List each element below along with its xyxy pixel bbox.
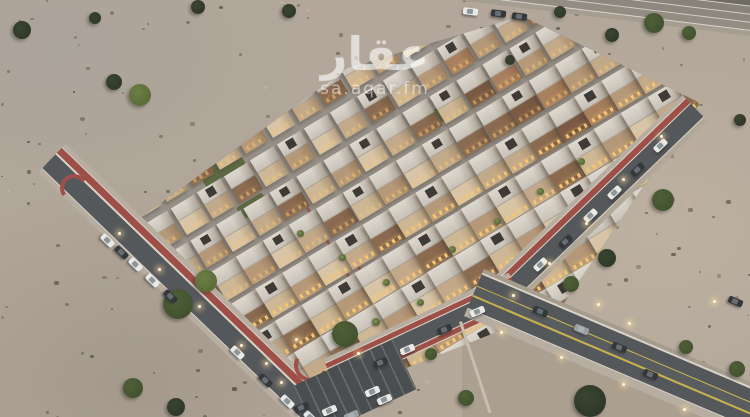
- car-windshield: [347, 412, 354, 417]
- villa-windows: [712, 123, 737, 140]
- palm-tree: [297, 230, 304, 237]
- tree: [129, 84, 151, 106]
- villa-shade: [151, 163, 189, 202]
- street-light: [512, 294, 515, 297]
- villa-roofbox: [637, 232, 652, 246]
- villa-roof: [391, 19, 421, 45]
- car-windshield: [615, 344, 622, 351]
- villa: [654, 33, 698, 78]
- car-windshield: [495, 11, 502, 17]
- street-light: [585, 222, 588, 225]
- villa-roof: [151, 163, 181, 189]
- villa-roof: [125, 179, 155, 205]
- tree: [598, 249, 616, 267]
- street-light: [198, 305, 201, 308]
- tree: [554, 6, 566, 18]
- street-light: [660, 135, 663, 138]
- villa: [679, 190, 729, 242]
- car-windshield: [473, 308, 480, 315]
- tree: [13, 21, 31, 39]
- villa-roofbox: [132, 186, 143, 197]
- villa-windows: [433, 380, 459, 398]
- villa-roof: [417, 3, 447, 29]
- villa-windows: [699, 220, 725, 238]
- villa-roof: [679, 190, 719, 224]
- street-light: [548, 262, 551, 265]
- villa-windows: [705, 172, 731, 190]
- tree: [679, 340, 693, 354]
- car-windshield: [103, 236, 111, 244]
- villa: [652, 206, 702, 258]
- street-light: [357, 352, 360, 355]
- villa-roof: [652, 206, 692, 240]
- tree: [734, 114, 746, 126]
- palm-tree: [449, 246, 456, 253]
- villa-roofbox: [292, 90, 303, 101]
- street-light: [683, 408, 686, 411]
- street-light: [118, 232, 121, 235]
- tree: [729, 361, 745, 377]
- villa-roof: [660, 159, 699, 192]
- palm-tree: [383, 279, 390, 286]
- villa-roof: [204, 131, 234, 157]
- street-light: [713, 300, 716, 303]
- tree: [282, 4, 296, 18]
- villa-windows: [626, 220, 652, 238]
- street-light: [240, 344, 243, 347]
- car: [491, 9, 507, 18]
- villa-roofbox: [372, 42, 383, 53]
- villa-windows: [432, 25, 452, 39]
- street-light: [597, 303, 600, 306]
- tree: [123, 378, 143, 398]
- villa: [231, 115, 269, 154]
- car-windshield: [380, 396, 387, 403]
- car-windshield: [261, 376, 269, 384]
- tree: [682, 26, 696, 40]
- street-light: [622, 383, 625, 386]
- villa-roofbox: [452, 0, 463, 5]
- car-windshield: [368, 388, 375, 395]
- street-light: [560, 356, 563, 359]
- villa-windows: [619, 268, 645, 286]
- villa-shade: [654, 33, 698, 78]
- villa-roofbox: [664, 41, 677, 54]
- tree: [89, 12, 101, 24]
- villa-windows: [646, 252, 672, 270]
- car-windshield: [577, 326, 584, 333]
- villa-roof: [686, 143, 725, 176]
- car-windshield: [440, 326, 447, 333]
- villa: [686, 143, 735, 193]
- tree: [332, 321, 358, 347]
- car-windshield: [646, 371, 653, 378]
- palm-tree: [417, 299, 424, 306]
- tree: [167, 398, 185, 416]
- villa-windows: [593, 284, 619, 302]
- car-windshield: [403, 346, 410, 353]
- villa: [391, 19, 429, 58]
- villa-windows: [672, 59, 695, 75]
- villa-windows: [532, 9, 553, 24]
- villa-shade: [626, 222, 676, 274]
- car-windshield: [516, 14, 523, 20]
- villa-roof: [674, 64, 710, 95]
- car-windshield: [233, 348, 241, 356]
- tree: [425, 348, 437, 360]
- villa-windows: [578, 26, 600, 41]
- villa-windows: [406, 396, 432, 414]
- palm-tree: [339, 254, 346, 261]
- tree: [644, 13, 664, 33]
- car: [463, 7, 479, 16]
- car-windshield: [131, 260, 139, 268]
- villa: [626, 222, 676, 274]
- street-light: [628, 322, 631, 325]
- street-light: [500, 331, 503, 334]
- villa-windows: [692, 91, 716, 108]
- tree: [191, 0, 205, 14]
- tree: [458, 390, 474, 406]
- street-light: [158, 268, 161, 271]
- villa-shade: [686, 143, 735, 193]
- car-windshield: [467, 9, 474, 15]
- aerial-photo: عقار sa.aqar.fm: [0, 0, 750, 417]
- villa: [151, 163, 189, 202]
- car-windshield: [148, 276, 156, 284]
- villa-windows: [679, 188, 705, 206]
- tree: [505, 55, 515, 65]
- villa-windows: [685, 139, 710, 156]
- palm-tree: [537, 188, 544, 195]
- car-windshield: [376, 359, 383, 366]
- highway-top: [408, 0, 750, 38]
- car-windshield: [325, 407, 332, 414]
- tree: [652, 189, 674, 211]
- palm-tree: [372, 318, 380, 326]
- villa-shade: [652, 206, 702, 258]
- tree: [605, 28, 619, 42]
- street-light: [265, 362, 268, 365]
- car-windshield: [536, 308, 543, 315]
- tree: [563, 276, 579, 292]
- villa-windows: [625, 42, 647, 58]
- tree: [195, 270, 217, 292]
- car-windshield: [117, 248, 125, 256]
- villa-shade: [679, 190, 729, 242]
- villa-roof: [626, 222, 666, 256]
- villa-roofbox: [212, 138, 223, 149]
- tree: [574, 385, 606, 417]
- street-light: [280, 381, 283, 384]
- villa-windows: [672, 236, 698, 254]
- villa-roof: [178, 147, 208, 173]
- villa-shade: [417, 3, 455, 42]
- villa: [417, 3, 455, 42]
- street-light: [295, 338, 298, 341]
- palm-tree: [494, 218, 501, 225]
- tree: [106, 74, 122, 90]
- street-light: [622, 178, 625, 181]
- car-windshield: [297, 404, 304, 411]
- car-windshield: [283, 397, 291, 405]
- car-windshield: [166, 292, 174, 300]
- car-windshield: [731, 298, 738, 305]
- palm-tree: [578, 158, 585, 165]
- scene-layer: [0, 0, 750, 417]
- car: [727, 295, 744, 307]
